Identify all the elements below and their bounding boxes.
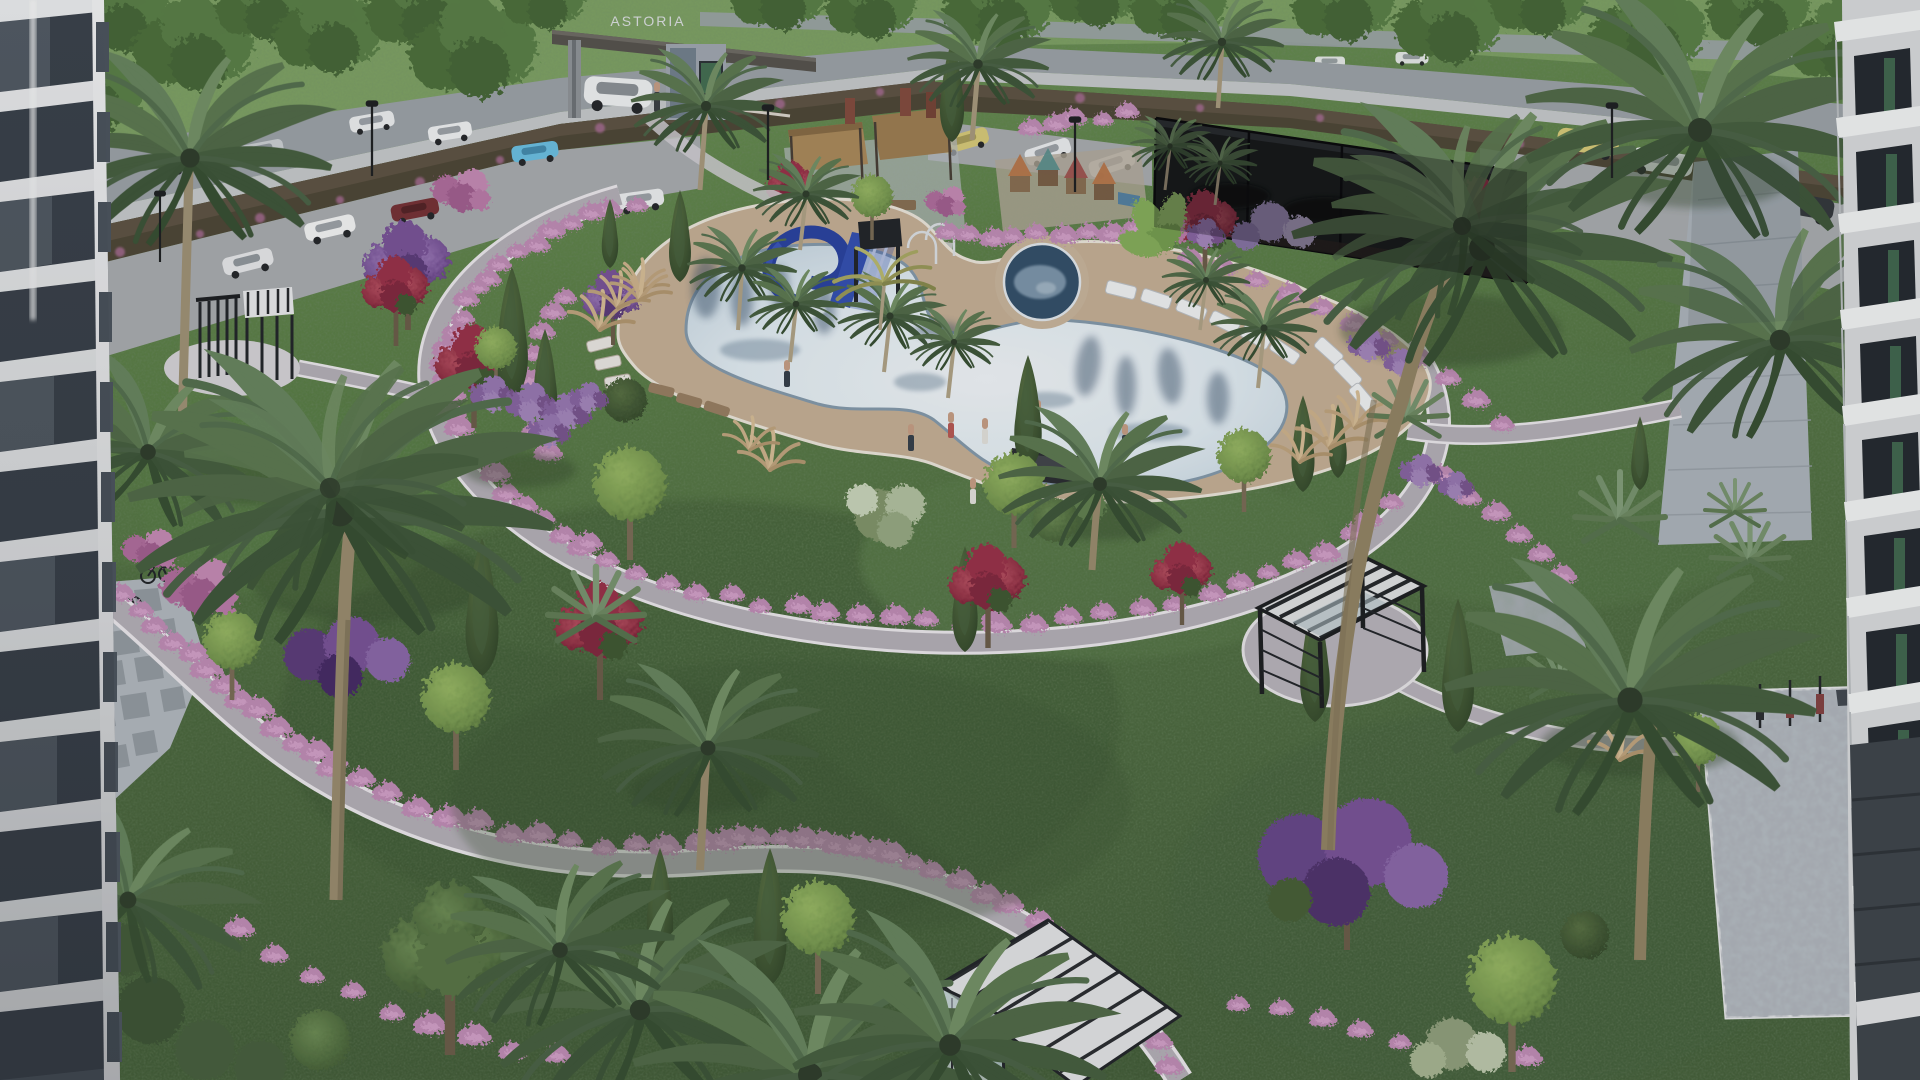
svg-text:ASTORIA: ASTORIA [610, 13, 685, 29]
